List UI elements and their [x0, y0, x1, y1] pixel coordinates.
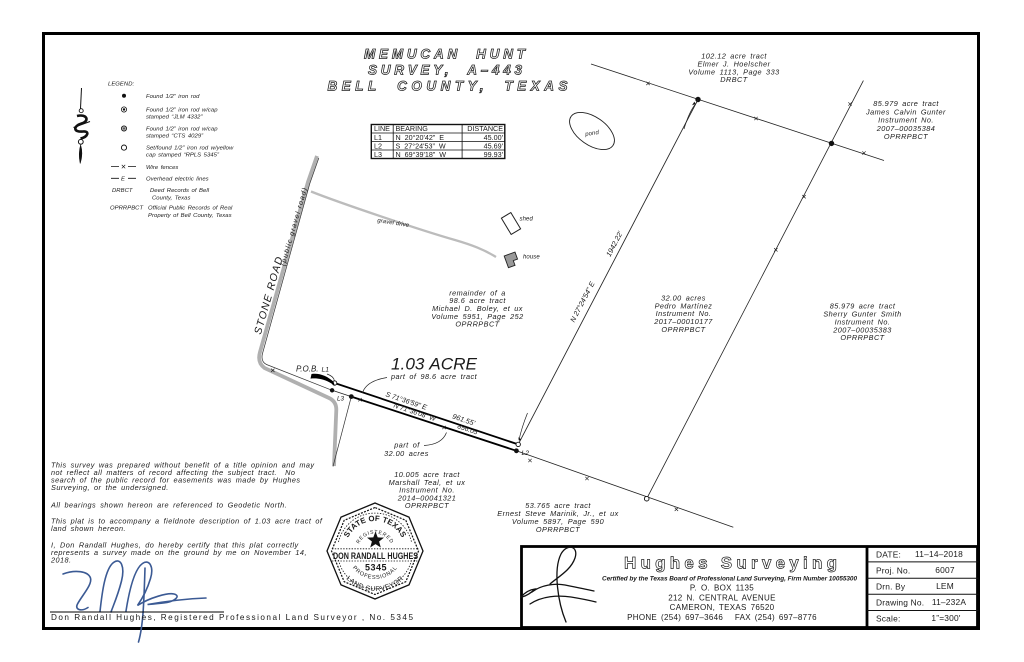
svg-text:Scale:: Scale: — [876, 614, 900, 624]
svg-text:stamped “JLM 4332”: stamped “JLM 4332” — [146, 115, 204, 121]
svg-text:DATE:: DATE: — [876, 550, 901, 560]
svg-text:DON RANDALL HUGHES: DON RANDALL HUGHES — [333, 551, 418, 562]
svg-text:Certified by the Texas Board o: Certified by the Texas Board of Professi… — [602, 576, 857, 583]
svg-text:5345: 5345 — [365, 563, 387, 573]
svg-text:land shown hereon.: land shown hereon. — [51, 524, 126, 533]
svg-text:2018.: 2018. — [50, 556, 72, 565]
svg-text:1”=300': 1”=300' — [931, 613, 961, 623]
svg-text:LEM: LEM — [936, 581, 954, 591]
svg-text:All bearings shown hereon are: All bearings shown hereon are referenced… — [50, 501, 287, 510]
svg-text:LEGEND:: LEGEND: — [108, 82, 135, 88]
svg-text:OPRRPBCT: OPRRPBCT — [455, 320, 499, 329]
svg-text:Drn. By: Drn. By — [876, 582, 906, 592]
svg-text:99.93': 99.93' — [484, 150, 504, 159]
svg-text:CAMERON, TEXAS 76520: CAMERON, TEXAS 76520 — [670, 603, 775, 612]
svg-text:Found 1/2” iron rod: Found 1/2” iron rod — [146, 94, 200, 100]
svg-text:11–14–2018: 11–14–2018 — [915, 549, 963, 559]
svg-text:P. O. BOX 1135: P. O. BOX 1135 — [690, 584, 754, 593]
svg-text:Proj. No.: Proj. No. — [876, 566, 910, 576]
svg-text:Drawing No.: Drawing No. — [876, 598, 924, 608]
svg-text:part of 98.6 acre tract: part of 98.6 acre tract — [390, 372, 478, 381]
svg-text:32.00 acres: 32.00 acres — [384, 449, 429, 458]
svg-text:Deed Records of Bell: Deed Records of Bell — [150, 188, 210, 194]
svg-text:Overhead electric lines: Overhead electric lines — [146, 177, 209, 183]
svg-text:DRBCT: DRBCT — [112, 188, 133, 194]
svg-text:PHONE (254) 697–3646 FAX (25: PHONE (254) 697–3646 FAX (254) 697–8776 — [627, 613, 817, 622]
svg-text:OPRRPBCT: OPRRPBCT — [405, 501, 449, 510]
svg-text:OPRRPBCT: OPRRPBCT — [840, 333, 884, 342]
svg-text:Hughes Surveying: Hughes Surveying — [624, 554, 837, 573]
svg-text:L3: L3 — [337, 396, 345, 403]
svg-text:Surveying, or the undersigned.: Surveying, or the undersigned. — [51, 483, 169, 492]
svg-text:L2: L2 — [522, 450, 530, 457]
svg-text:L3: L3 — [374, 150, 382, 159]
svg-text:Property of Bell County, Texas: Property of Bell County, Texas — [148, 213, 232, 219]
svg-text:Set/found 1/2” iron rod w/yell: Set/found 1/2” iron rod w/yellow — [146, 146, 234, 152]
svg-text:County, Texas: County, Texas — [152, 196, 190, 202]
svg-text:DRBCT: DRBCT — [720, 75, 747, 84]
svg-text:Found 1/2” iron rod w/cap: Found 1/2” iron rod w/cap — [146, 108, 218, 114]
svg-text:Found 1/2” iron rod w/cap: Found 1/2” iron rod w/cap — [146, 127, 218, 133]
svg-text:6007: 6007 — [935, 565, 955, 575]
svg-text:cap stamped “RPLS 5345”: cap stamped “RPLS 5345” — [146, 153, 220, 159]
svg-text:Don Randall Hughes, Registered: Don Randall Hughes, Registered Professio… — [51, 613, 413, 622]
svg-text:Official Public Records of Rea: Official Public Records of Real — [148, 206, 233, 212]
svg-text:OPRRPBCT: OPRRPBCT — [661, 325, 705, 334]
svg-text:represents a survey made on th: represents a survey made on the ground b… — [51, 548, 307, 557]
svg-text:P.O.B.: P.O.B. — [296, 365, 319, 374]
svg-text:1.03 ACRE: 1.03 ACRE — [391, 356, 478, 374]
svg-text:N 69°39'18” W: N 69°39'18” W — [396, 150, 447, 159]
svg-text:E: E — [121, 177, 125, 183]
svg-text:212 N. CENTRAL AVENUE: 212 N. CENTRAL AVENUE — [668, 594, 775, 603]
svg-text:shed: shed — [520, 217, 534, 223]
svg-text:house: house — [523, 255, 540, 261]
svg-text:OPRRPBCT: OPRRPBCT — [884, 132, 928, 141]
svg-text:L1: L1 — [322, 367, 330, 374]
svg-text:Wire fences: Wire fences — [146, 165, 178, 171]
svg-text:OPRRPBCT: OPRRPBCT — [536, 525, 580, 534]
svg-text:OPRRPBCT: OPRRPBCT — [110, 206, 143, 212]
svg-text:stamped “CTS 4029”: stamped “CTS 4029” — [146, 134, 204, 140]
svg-text:11–232A: 11–232A — [932, 597, 967, 607]
